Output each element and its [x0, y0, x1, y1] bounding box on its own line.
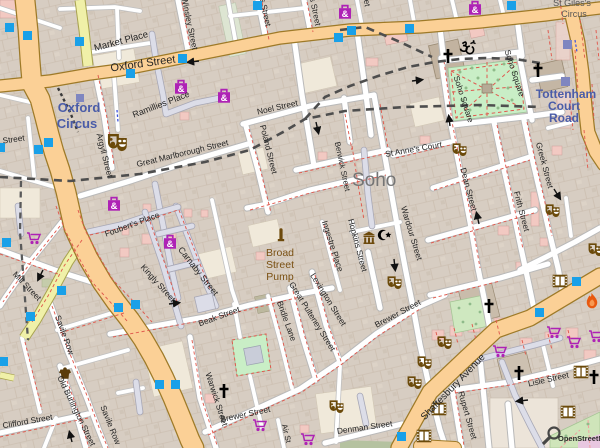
svg-text:OpenStreetMap: OpenStreetMap — [558, 434, 600, 443]
svg-text:Broad: Broad — [266, 247, 294, 259]
svg-text:Road: Road — [549, 111, 579, 125]
svg-text:Circus: Circus — [561, 9, 587, 19]
svg-text:Oxford: Oxford — [58, 100, 101, 115]
svg-text:Circus: Circus — [57, 116, 97, 131]
svg-text:St Giles's: St Giles's — [553, 0, 591, 8]
svg-text:Pump: Pump — [266, 271, 294, 283]
svg-text:Street: Street — [266, 259, 294, 271]
svg-text:Soho: Soho — [352, 170, 396, 191]
